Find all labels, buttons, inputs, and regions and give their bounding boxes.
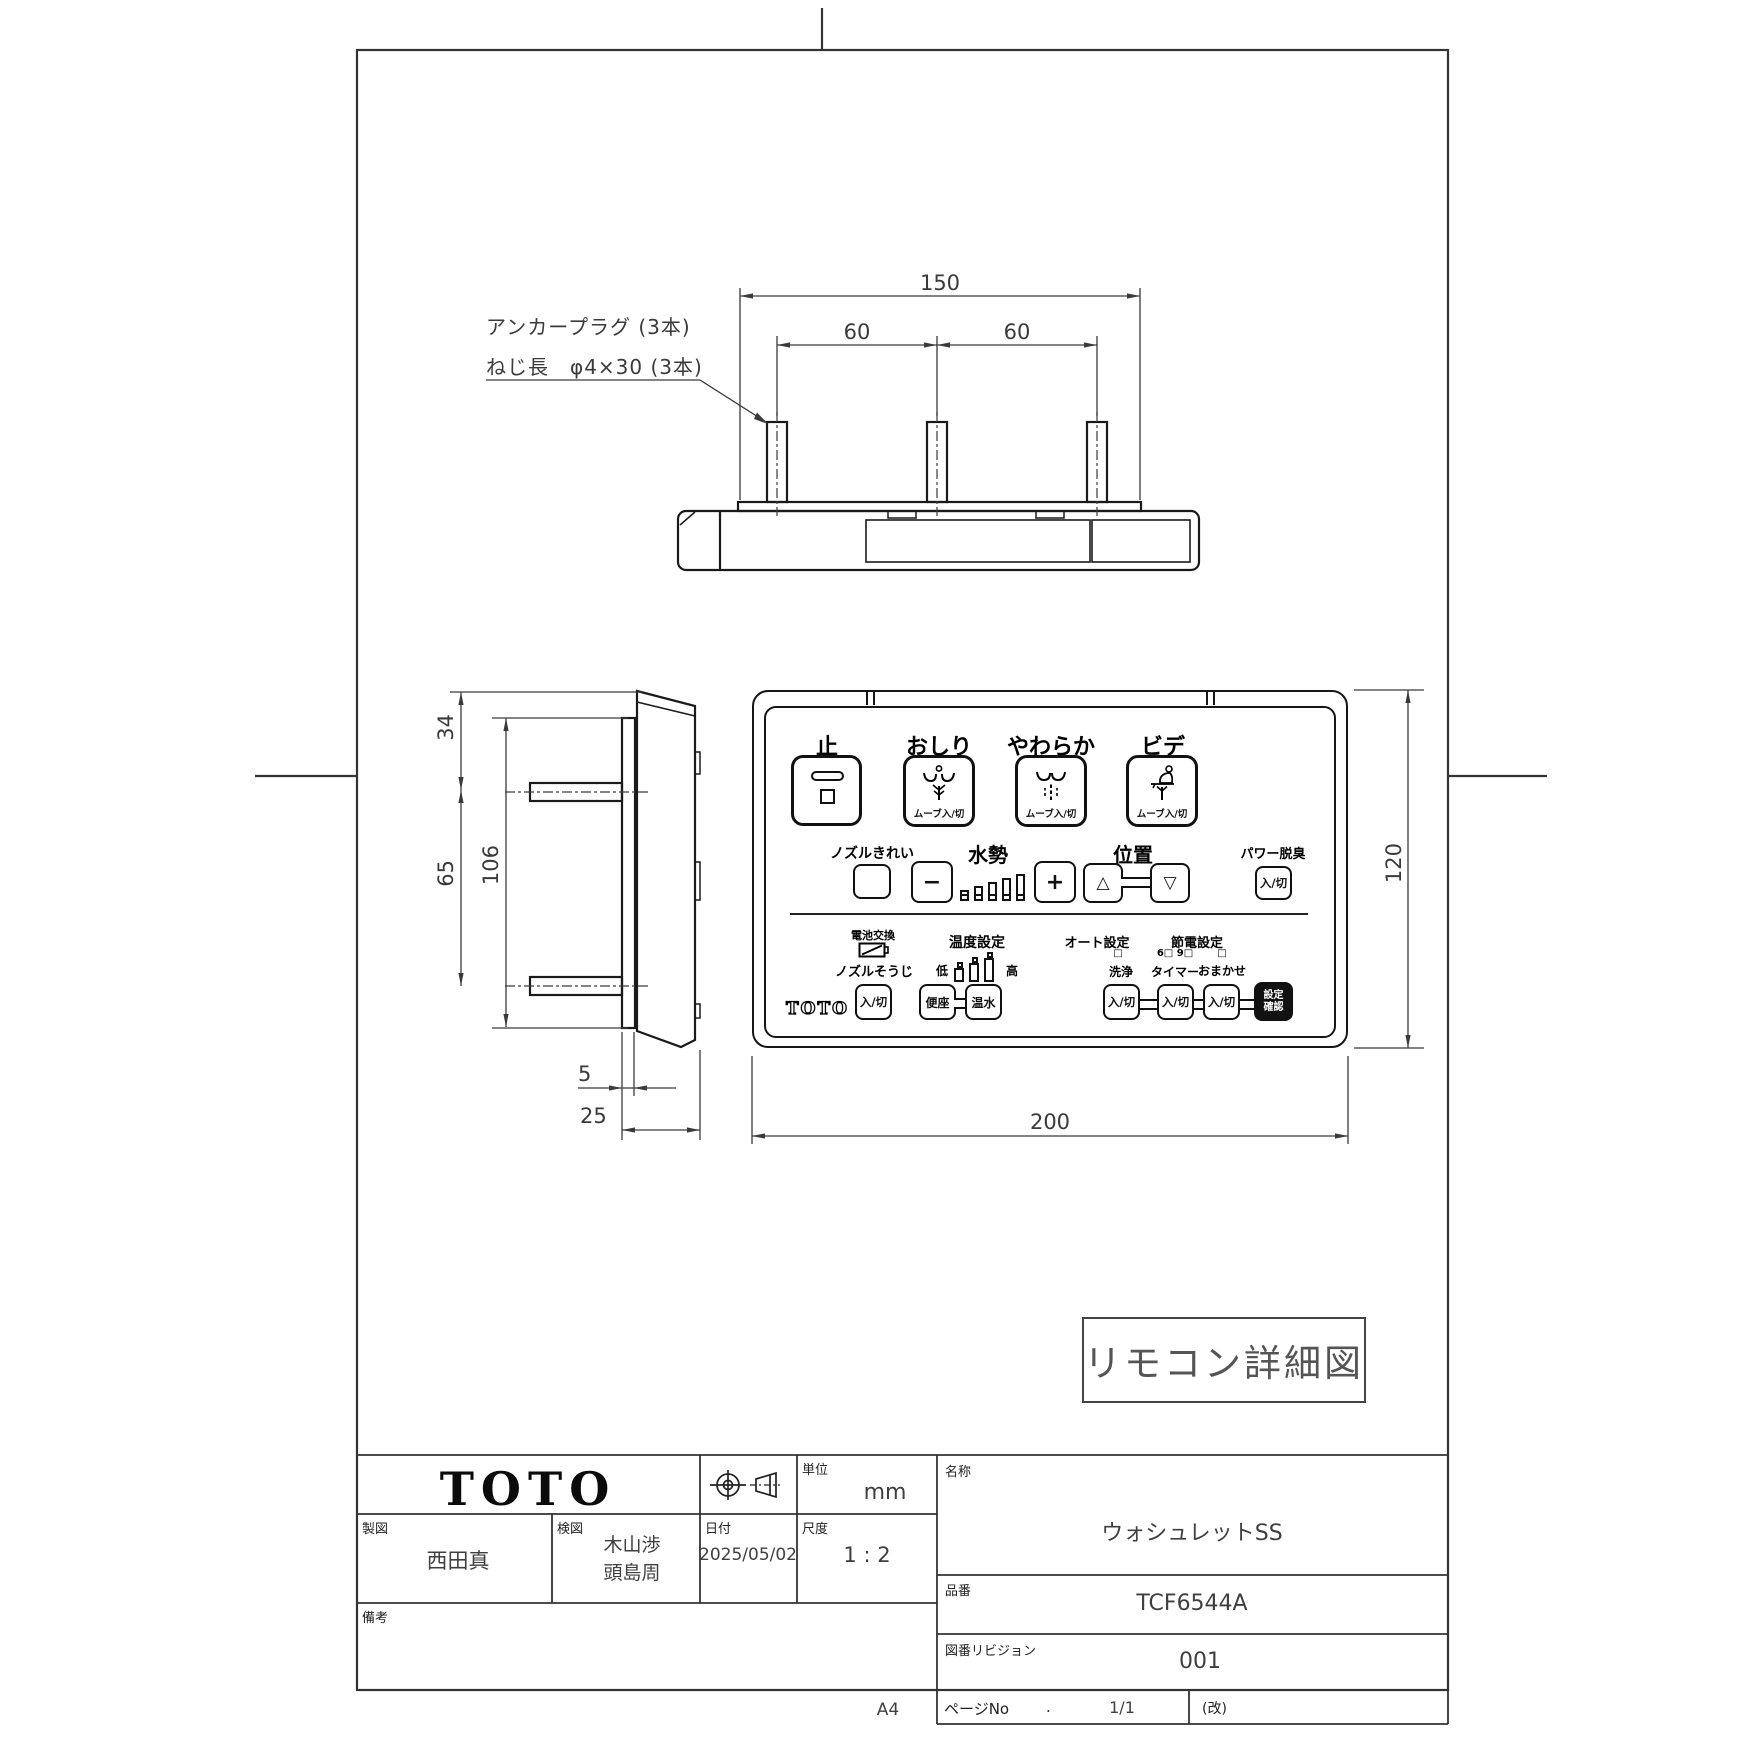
soft-spray-icon <box>1030 764 1072 806</box>
checker-value-2: 頭島周 <box>603 1558 660 1585</box>
soft-wash-button: ムーブ入/切 <box>1015 755 1087 827</box>
stop-button <box>791 755 862 826</box>
side-view <box>530 691 700 1047</box>
projection-symbol-icon <box>710 1470 780 1500</box>
bar-cell <box>974 894 983 899</box>
position-up-button: △ <box>1083 863 1123 903</box>
button-link <box>1121 877 1152 888</box>
temp-level-bar-1 <box>954 968 964 982</box>
dim-60-left: 60 <box>844 320 871 344</box>
bar-cell <box>960 894 969 899</box>
nozzle-clean-label: ノズルきれい <box>830 843 914 863</box>
oshiri-wash-button: ムーブ入/切 <box>903 755 975 827</box>
page-no-value: 1/1 <box>1109 1698 1135 1717</box>
dim-200: 200 <box>1030 1110 1070 1134</box>
nozzle-souji-label: ノズルそうじ <box>835 961 913 980</box>
button-link <box>1240 999 1254 1010</box>
paper-size-label: A4 <box>877 1700 899 1720</box>
side-view-centerlines <box>505 792 648 986</box>
triangle-down-icon: ▽ <box>1163 873 1176 893</box>
omakase-onoff-button: 入/切 <box>1203 984 1240 1020</box>
unit-value: mm <box>864 1480 907 1505</box>
kai-mark: (改) <box>1202 1698 1227 1718</box>
temp-bar-cap <box>972 957 978 963</box>
eco-69-indicator: 6□ 9□ <box>1157 948 1193 959</box>
dim-150: 150 <box>920 271 960 295</box>
dim-34: 34 <box>434 714 458 741</box>
setting-confirm-button: 設定 確認 <box>1254 982 1293 1021</box>
confirm-line1: 設定 <box>1264 990 1284 1002</box>
oshiri-spray-icon <box>918 764 960 806</box>
water-pressure-label: 水勢 <box>968 839 1008 868</box>
date-label: 日付 <box>705 1518 731 1537</box>
temp-level-bar-3 <box>984 958 994 982</box>
bidet-wash-button: ムーブ入/切 <box>1126 755 1198 827</box>
anchor-plug-note-line2: ねじ長 φ4×30 (3本) <box>486 351 703 380</box>
temperature-setting-label: 温度設定 <box>949 932 1005 952</box>
confirm-line2: 確認 <box>1264 1002 1284 1014</box>
side-view-dimensions <box>450 692 700 1140</box>
drawing-canvas: アンカープラグ (3本) ねじ長 φ4×30 (3本) 150 60 60 34… <box>0 0 1754 1754</box>
plate-tab-mark <box>873 690 875 705</box>
button-link <box>1194 999 1203 1010</box>
anchor-plug-note-line1: アンカープラグ (3本) <box>486 311 691 340</box>
panel-separator <box>790 913 1308 915</box>
name-label: 名称 <box>945 1461 971 1480</box>
warm-water-button: 温水 <box>965 984 1002 1020</box>
dim-25: 25 <box>580 1104 607 1128</box>
auto-wash-onoff-button: 入/切 <box>1103 984 1140 1020</box>
dim-5: 5 <box>578 1062 591 1086</box>
stop-square-icon <box>820 789 835 804</box>
scale-value: 1 : 2 <box>843 1543 890 1567</box>
detail-title: リモコン詳細図 <box>1084 1333 1364 1387</box>
deodorizer-label: パワー脱臭 <box>1240 843 1305 862</box>
temp-level-bar-2 <box>969 963 979 982</box>
water-level-bar-3 <box>988 882 997 901</box>
bar-cell <box>1002 894 1011 899</box>
remarks-label: 備考 <box>362 1607 388 1626</box>
bidet-person-icon <box>1141 764 1183 806</box>
nozzle-souji-onoff-button: 入/切 <box>855 984 892 1020</box>
dim-65: 65 <box>434 860 458 887</box>
part-no-value: TCF6544A <box>1136 1591 1247 1616</box>
title-brand-logo: TOTO <box>440 1462 617 1516</box>
wash-label: 洗浄 <box>1109 963 1133 980</box>
position-down-button: ▽ <box>1150 863 1190 903</box>
plate-tab-mark <box>1206 690 1208 705</box>
detail-title-box: リモコン詳細図 <box>1082 1317 1366 1403</box>
drafter-label: 製図 <box>362 1518 388 1537</box>
triangle-up-icon: △ <box>1096 873 1109 893</box>
temp-bar-cap <box>987 952 993 958</box>
timer-onoff-button: 入/切 <box>1157 984 1194 1020</box>
scale-label: 尺度 <box>802 1518 828 1537</box>
move-onoff-label: ムーブ入/切 <box>914 806 964 820</box>
dim-120: 120 <box>1382 843 1406 883</box>
date-value: 2025/05/02 <box>699 1545 797 1565</box>
checker-label: 検図 <box>557 1518 583 1537</box>
plate-tab-mark <box>866 690 868 705</box>
temp-bar-cap <box>957 962 963 968</box>
bar-cell <box>1016 894 1025 899</box>
water-level-bar-4 <box>1002 878 1011 901</box>
temp-low-label: 低 <box>936 962 948 979</box>
rev-label: 図番リビジョン <box>945 1640 1036 1659</box>
part-no-label: 品番 <box>945 1580 971 1599</box>
plus-icon: + <box>1046 870 1064 895</box>
top-view-arrows <box>740 293 1140 424</box>
battery-icon <box>858 941 890 963</box>
timer-label: タイマー <box>1151 963 1199 980</box>
water-level-bar-5 <box>1016 874 1025 901</box>
nozzle-clean-button <box>853 864 891 899</box>
panel-brand-logo: TOTO <box>786 999 849 1019</box>
seat-temp-button: 便座 <box>919 984 956 1020</box>
water-level-bar-1 <box>960 890 969 901</box>
page-no-dot: . <box>1046 1698 1051 1716</box>
omakase-label: おまかせ <box>1198 962 1246 979</box>
bar-cell <box>988 894 997 899</box>
rev-value: 001 <box>1179 1649 1221 1674</box>
dim-106: 106 <box>479 845 503 885</box>
button-link <box>1140 999 1157 1010</box>
dim-60-right: 60 <box>1004 320 1031 344</box>
water-level-bar-2 <box>974 886 983 901</box>
drafter-value: 西田真 <box>427 1545 490 1575</box>
deodorizer-onoff-button: 入/切 <box>1255 866 1292 900</box>
top-view-centerlines <box>777 412 1097 516</box>
stop-slot-icon <box>811 771 844 781</box>
unit-label: 単位 <box>802 1459 828 1478</box>
water-minus-button: − <box>911 861 953 903</box>
move-onoff-label: ムーブ入/切 <box>1137 806 1187 820</box>
checker-value-1: 木山渉 <box>603 1530 660 1557</box>
move-onoff-label: ムーブ入/切 <box>1026 806 1076 820</box>
plate-tab-mark <box>1213 690 1215 705</box>
water-plus-button: + <box>1034 861 1076 903</box>
minus-icon: − <box>923 870 941 895</box>
name-value: ウォシュレットSS <box>1101 1515 1283 1547</box>
page-no-label: ページNo <box>944 1698 1009 1719</box>
temp-high-label: 高 <box>1006 962 1018 979</box>
eco-indicator: □ <box>1217 948 1226 959</box>
auto-indicator: □ <box>1113 948 1122 959</box>
top-view <box>678 422 1199 570</box>
